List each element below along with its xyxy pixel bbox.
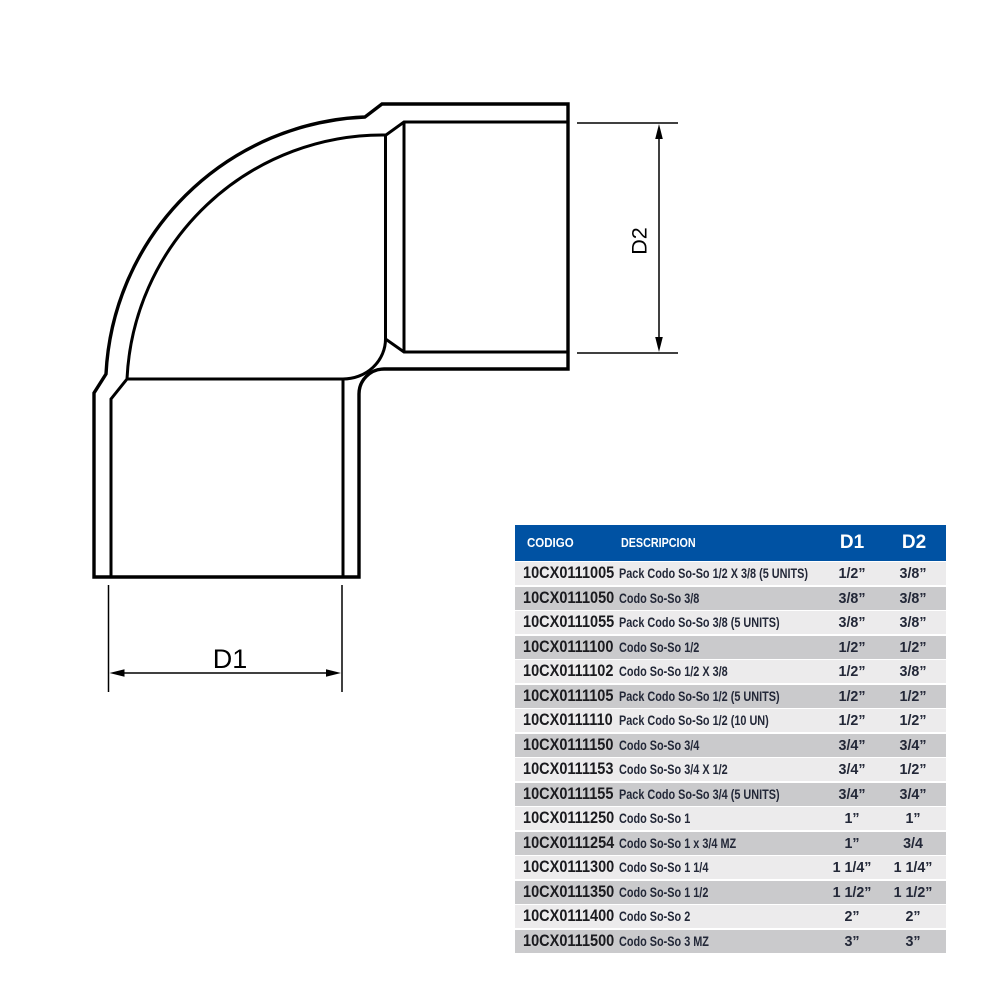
svg-text:D1: D1 [213,644,248,674]
svg-text:D2: D2 [628,227,652,254]
